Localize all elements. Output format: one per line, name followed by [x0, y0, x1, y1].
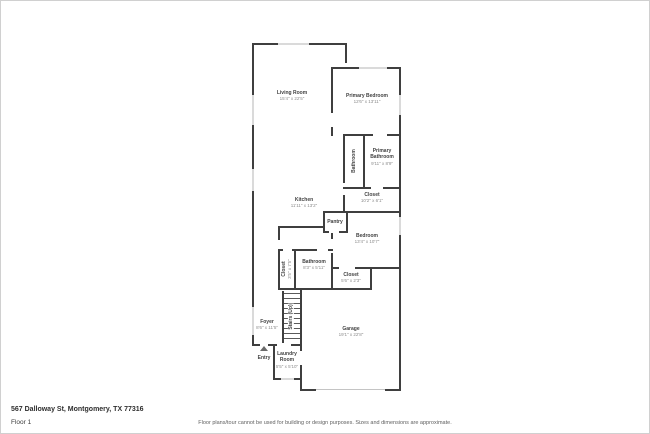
stairs-treads [284, 293, 300, 339]
floor-plan-page: Living Room 15'4" x 22'5" Primary Bedroo… [0, 0, 650, 434]
disclaimer-text: Floor plans/tour cannot be used for buil… [1, 420, 649, 426]
garage-door-line [316, 389, 385, 390]
address-text: 567 Dalloway St, Montgomery, TX 77316 [11, 406, 144, 413]
walls-layer [252, 43, 401, 391]
floor-plan-drawing [1, 1, 650, 434]
entry-direction-icon [260, 346, 268, 351]
